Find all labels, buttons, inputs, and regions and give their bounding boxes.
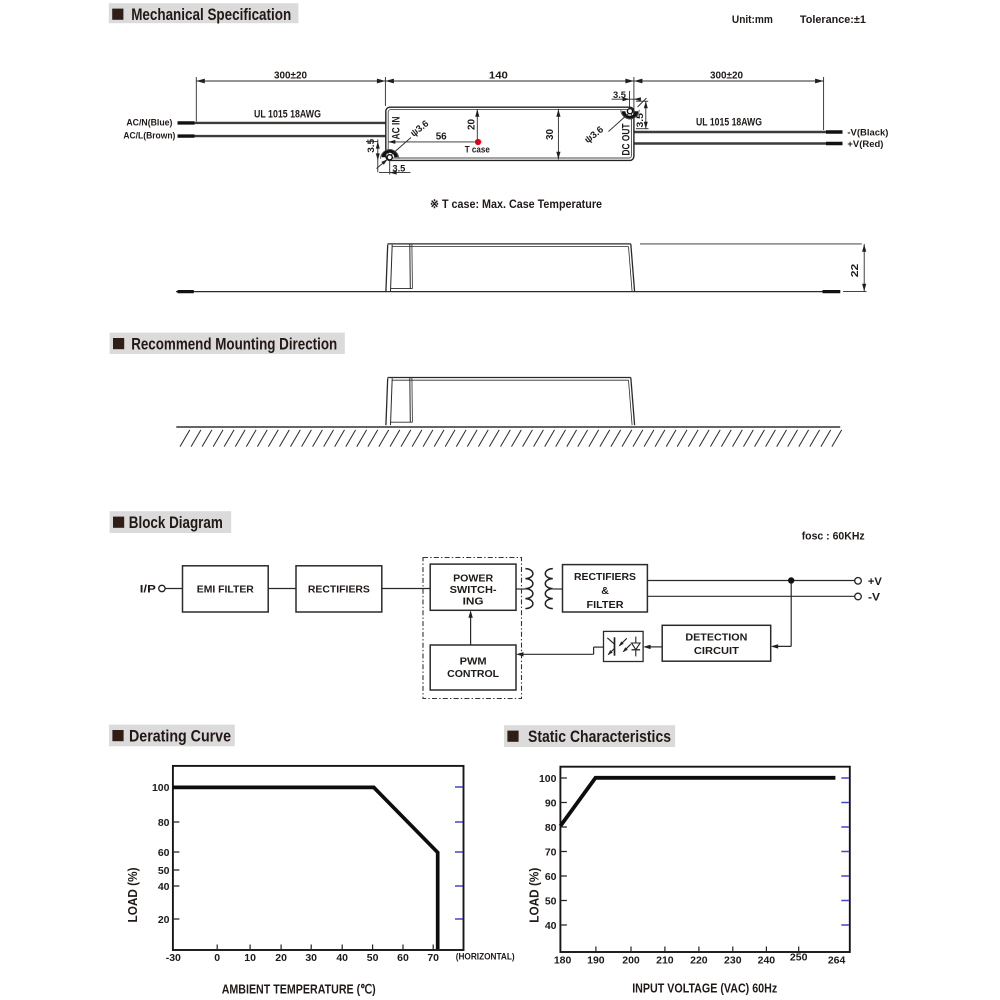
svg-text:70: 70 bbox=[545, 847, 557, 859]
svg-text:Block Diagram: Block Diagram bbox=[129, 514, 223, 532]
svg-text:T case: T case bbox=[465, 145, 490, 156]
svg-text:DC OUT: DC OUT bbox=[621, 123, 633, 155]
svg-text:INPUT VOLTAGE (VAC) 60Hz: INPUT VOLTAGE (VAC) 60Hz bbox=[632, 980, 777, 995]
svg-text:190: 190 bbox=[587, 955, 605, 967]
svg-text:100: 100 bbox=[539, 773, 557, 785]
svg-text:AC/N(Blue): AC/N(Blue) bbox=[126, 117, 172, 128]
svg-text:+V: +V bbox=[868, 576, 883, 588]
svg-text:AC IN: AC IN bbox=[390, 116, 402, 139]
svg-text:60: 60 bbox=[158, 847, 170, 859]
svg-text:Static Characteristics: Static Characteristics bbox=[528, 728, 671, 746]
svg-text:POWER: POWER bbox=[453, 573, 493, 585]
svg-text:RECTIFIERS: RECTIFIERS bbox=[308, 583, 370, 595]
svg-text:0: 0 bbox=[214, 952, 220, 964]
svg-text:UL 1015 18AWG: UL 1015 18AWG bbox=[696, 117, 762, 129]
svg-text:ψ3.6: ψ3.6 bbox=[583, 124, 606, 146]
svg-text:RECTIFIERS: RECTIFIERS bbox=[574, 571, 636, 583]
svg-text:22: 22 bbox=[849, 264, 861, 278]
svg-text:220: 220 bbox=[690, 955, 708, 967]
svg-text:140: 140 bbox=[489, 69, 508, 81]
svg-text:60: 60 bbox=[397, 952, 409, 964]
svg-text:100: 100 bbox=[152, 782, 170, 794]
svg-text:300±20: 300±20 bbox=[710, 69, 743, 81]
svg-text:50: 50 bbox=[545, 896, 557, 908]
svg-text:UL 1015 18AWG: UL 1015 18AWG bbox=[254, 109, 321, 121]
svg-text:300±20: 300±20 bbox=[274, 69, 307, 81]
svg-text:230: 230 bbox=[724, 955, 742, 967]
svg-text:&: & bbox=[601, 585, 609, 597]
svg-text:-V(Black): -V(Black) bbox=[847, 127, 888, 138]
svg-text:AC/L(Brown): AC/L(Brown) bbox=[123, 131, 175, 142]
svg-text:DETECTION: DETECTION bbox=[685, 632, 747, 644]
svg-text:30: 30 bbox=[545, 129, 556, 140]
svg-text:3.5: 3.5 bbox=[635, 112, 646, 127]
svg-text:3.5: 3.5 bbox=[366, 138, 377, 153]
svg-text:20: 20 bbox=[275, 952, 287, 964]
svg-text:FILTER: FILTER bbox=[587, 599, 624, 611]
svg-text:ψ3.6: ψ3.6 bbox=[409, 118, 432, 139]
svg-text:+V(Red): +V(Red) bbox=[847, 139, 883, 150]
svg-text:SWITCH-: SWITCH- bbox=[450, 584, 498, 596]
svg-text:fosc : 60KHz: fosc : 60KHz bbox=[802, 530, 865, 542]
svg-text:CIRCUIT: CIRCUIT bbox=[694, 645, 740, 657]
svg-text:-30: -30 bbox=[166, 952, 181, 964]
svg-text:Recommend Mounting Direction: Recommend Mounting Direction bbox=[131, 335, 337, 353]
svg-text:※ T case: Max. Case Temperatur: ※ T case: Max. Case Temperature bbox=[430, 198, 602, 211]
svg-text:240: 240 bbox=[758, 955, 776, 967]
svg-text:30: 30 bbox=[305, 952, 317, 964]
svg-text:80: 80 bbox=[545, 822, 557, 834]
svg-text:LOAD (%): LOAD (%) bbox=[125, 868, 140, 923]
svg-text:200: 200 bbox=[622, 955, 640, 967]
svg-text:50: 50 bbox=[158, 865, 170, 877]
svg-text:60: 60 bbox=[545, 871, 557, 883]
svg-text:Mechanical Specification: Mechanical Specification bbox=[131, 6, 291, 24]
svg-text:EMI FILTER: EMI FILTER bbox=[197, 583, 254, 595]
svg-text:50: 50 bbox=[367, 952, 379, 964]
svg-text:80: 80 bbox=[158, 817, 170, 829]
svg-text:Tolerance:±1: Tolerance:±1 bbox=[800, 14, 866, 26]
svg-text:210: 210 bbox=[656, 955, 674, 967]
svg-text:20: 20 bbox=[158, 914, 170, 926]
svg-text:70: 70 bbox=[427, 952, 439, 964]
svg-text:10: 10 bbox=[244, 952, 256, 964]
svg-text:AMBIENT TEMPERATURE (℃): AMBIENT TEMPERATURE (℃) bbox=[222, 981, 376, 996]
svg-text:90: 90 bbox=[545, 798, 557, 810]
svg-text:20: 20 bbox=[466, 119, 477, 130]
svg-text:250: 250 bbox=[790, 952, 808, 964]
svg-text:LOAD (%): LOAD (%) bbox=[527, 868, 542, 923]
svg-text:56: 56 bbox=[436, 131, 447, 142]
svg-text:40: 40 bbox=[336, 952, 348, 964]
svg-text:264: 264 bbox=[828, 955, 846, 967]
svg-text:40: 40 bbox=[545, 920, 557, 932]
svg-text:Derating Curve: Derating Curve bbox=[129, 728, 231, 746]
svg-text:ING: ING bbox=[463, 595, 484, 607]
svg-text:40: 40 bbox=[158, 881, 170, 893]
svg-text:(HORIZONTAL): (HORIZONTAL) bbox=[456, 952, 515, 963]
svg-text:I/P: I/P bbox=[140, 583, 156, 595]
svg-text:-V: -V bbox=[868, 591, 881, 603]
svg-text:Unit:mm: Unit:mm bbox=[732, 14, 773, 26]
svg-text:PWM: PWM bbox=[460, 655, 487, 667]
svg-text:180: 180 bbox=[554, 955, 572, 967]
svg-text:CONTROL: CONTROL bbox=[447, 668, 500, 680]
